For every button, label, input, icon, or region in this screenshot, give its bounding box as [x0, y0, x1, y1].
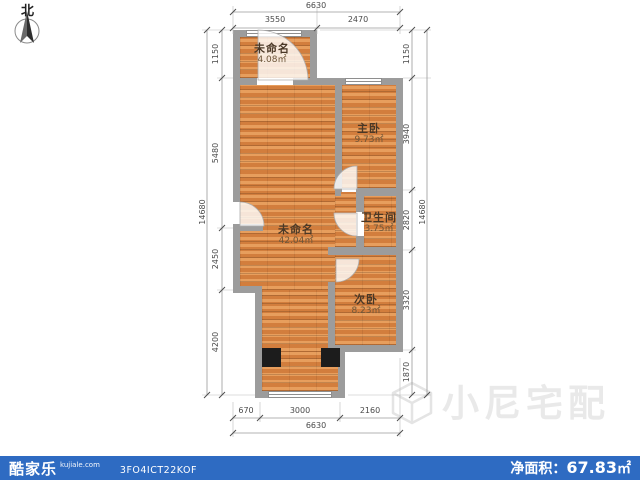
column [262, 348, 281, 367]
north-label: 北 [21, 0, 34, 19]
room-label-living: 未命名 42.04㎡ [261, 223, 331, 247]
window [268, 391, 332, 398]
dim-left-seg: 4200 [211, 320, 221, 364]
dim-left-total: 14680 [198, 190, 208, 234]
dim-left-seg: 5480 [211, 131, 221, 175]
room-floor-corridor-upper [262, 290, 328, 352]
dim-bottom-seg: 3000 [278, 406, 322, 416]
watermark-text: 小尼宅配 [442, 385, 610, 422]
wall-segment [233, 85, 240, 202]
wall-segment [356, 188, 403, 196]
wall-segment [255, 288, 262, 398]
dim-bottom-total: 6630 [294, 421, 338, 431]
dim-left-seg: 1150 [211, 32, 221, 76]
dim-top-total: 6630 [294, 1, 338, 11]
plan-code: 3FO4ICT22KOF [120, 465, 197, 476]
kujiale-logo: 酷家乐 [9, 458, 57, 479]
cube-logo-icon [390, 380, 434, 426]
wall-segment [328, 247, 403, 255]
room-label-master-bedroom: 主卧 9.73㎡ [334, 122, 404, 146]
window [345, 78, 382, 85]
dim-left-seg: 2450 [211, 237, 221, 281]
dim-right-seg: 3940 [402, 112, 412, 156]
wall-segment [356, 196, 364, 212]
net-area-unit: ㎡ [617, 458, 631, 478]
room-label-second-bedroom: 次卧 8.23㎡ [331, 293, 401, 317]
footer-bar: 酷家乐 kujiale.com 3FO4ICT22KOF 净面积： 67.83 … [0, 456, 640, 480]
dim-right-seg: 1870 [402, 350, 412, 394]
room-label-balcony: 未命名 4.08㎡ [237, 42, 307, 66]
dim-bottom-seg: 670 [224, 406, 268, 416]
floorplan-page: 北 [0, 0, 640, 480]
brand-block: 酷家乐 kujiale.com 3FO4ICT22KOF [9, 458, 197, 479]
net-area-value: 67.83 [566, 458, 617, 477]
wall-segment [233, 224, 240, 290]
dim-top-seg: 2470 [336, 15, 380, 25]
dim-bottom-seg: 2160 [348, 406, 392, 416]
dim-top-seg: 3550 [253, 15, 297, 25]
net-area-label: 净面积： [510, 458, 566, 478]
column [321, 348, 340, 367]
dim-right-seg: 1150 [402, 32, 412, 76]
dim-right-seg: 2820 [402, 198, 412, 242]
wall-segment [233, 78, 257, 85]
room-floor-living [240, 85, 335, 290]
net-area: 净面积： 67.83 ㎡ [510, 458, 631, 478]
brand-site: kujiale.com [60, 461, 100, 469]
watermark: 小尼宅配 [390, 380, 610, 426]
dim-right-seg: 3320 [402, 278, 412, 322]
dim-right-total: 14680 [418, 190, 428, 234]
wall-segment [335, 188, 341, 196]
window [246, 30, 302, 37]
